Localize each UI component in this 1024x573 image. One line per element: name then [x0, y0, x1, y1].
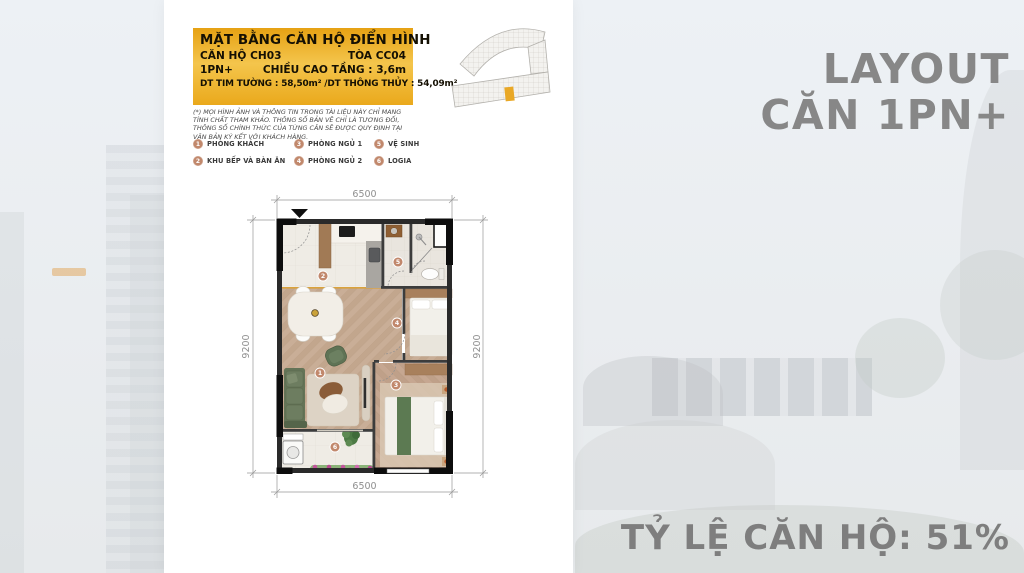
svg-text:5: 5 — [396, 259, 400, 266]
room-number-badge: 5 — [374, 139, 384, 149]
window — [387, 469, 429, 473]
apartment-info-card: MẶT BẰNG CĂN HỘ ĐIỂN HÌNH CĂN HỘ CH03 TÒ… — [193, 28, 413, 105]
svg-text:4: 4 — [395, 320, 400, 327]
floor-plan: 6500 6500 9200 9200 — [235, 185, 500, 505]
background-tower — [130, 195, 164, 573]
room-number-badge: 3 — [294, 139, 304, 149]
layout-heading-line2: CĂN 1PN+ — [760, 92, 1010, 138]
shelf — [283, 434, 303, 440]
sink — [369, 248, 380, 262]
room-legend: 1 PHÒNG KHÁCH 2 KHU BẾP VÀ BÀN ĂN 3 PHÒN… — [193, 137, 431, 167]
dim-top: 6500 — [352, 189, 376, 200]
svg-text:6: 6 — [333, 444, 337, 451]
legend-item-bedroom1: 3 PHÒNG NGỦ 1 — [294, 137, 374, 151]
room-number-badge: 1 — [193, 139, 203, 149]
wardrobe — [405, 364, 452, 375]
stove — [339, 226, 355, 237]
background-palm-tree — [940, 250, 1024, 360]
svg-text:2: 2 — [321, 273, 325, 280]
area-figures: DT TIM TƯỜNG : 58,50m² /DT THÔNG THỦY : … — [200, 79, 406, 89]
background-buildings — [652, 358, 872, 416]
badge-kitchen: 2 — [318, 271, 328, 281]
toilet — [422, 269, 445, 280]
badge-bedroom2: 4 — [392, 318, 402, 328]
info-card-title: MẶT BẰNG CĂN HỘ ĐIỂN HÌNH — [200, 33, 406, 48]
unit-ratio-heading: TỶ LỆ CĂN HỘ: 51% — [621, 518, 1010, 558]
disclaimer-text: (*) MỌI HÌNH ẢNH VÀ THÔNG TIN TRONG TÀI … — [193, 108, 417, 141]
legend-item-bedroom2: 4 PHÒNG NGỦ 2 — [294, 154, 374, 168]
badge-logia: 6 — [330, 442, 340, 452]
dining-set — [288, 287, 343, 342]
unit-code: CĂN HỘ CH03 — [200, 50, 281, 62]
background-tower — [0, 212, 24, 573]
legend-item-kitchen: 2 KHU BẾP VÀ BÀN ĂN — [193, 154, 294, 168]
bed-runner — [397, 397, 411, 455]
layout-heading: LAYOUT CĂN 1PN+ — [760, 46, 1010, 138]
building-key-plan — [448, 12, 562, 120]
legend-item-living: 1 PHÒNG KHÁCH — [193, 137, 294, 151]
tv-console — [362, 365, 370, 421]
background-palm-tree — [855, 318, 945, 398]
dim-right: 9200 — [472, 334, 483, 358]
background-trees — [575, 420, 775, 510]
room-number-badge: 2 — [193, 156, 203, 166]
badge-bedroom1: 3 — [391, 380, 401, 390]
bedroom-2 — [405, 289, 452, 356]
tower-code: TÒA CC04 — [348, 50, 406, 62]
layout-heading-line1: LAYOUT — [760, 46, 1010, 92]
svg-text:3: 3 — [394, 382, 398, 389]
room-number-badge: 4 — [294, 156, 304, 166]
badge-wc: 5 — [393, 257, 403, 267]
content-panel: MẶT BẰNG CĂN HỘ ĐIỂN HÌNH CĂN HỘ CH03 TÒ… — [164, 0, 573, 573]
entry-arrow-icon — [291, 209, 308, 218]
headboard — [405, 289, 452, 298]
room-number-badge: 6 — [374, 156, 384, 166]
background-roof — [52, 268, 86, 276]
highlighted-unit-marker — [504, 87, 514, 102]
slide: MẶT BẰNG CĂN HỘ ĐIỂN HÌNH CĂN HỘ CH03 TÒ… — [0, 0, 1024, 573]
cabinet — [319, 223, 331, 268]
badge-living: 1 — [315, 368, 325, 378]
ceiling-height: CHIỀU CAO TẦNG : 3,6m — [263, 64, 406, 76]
building-outline — [452, 29, 550, 107]
svg-text:1: 1 — [318, 370, 322, 377]
legend-item-wc: 5 VỆ SINH — [374, 137, 430, 151]
sofa — [284, 368, 307, 428]
legend-item-logia: 6 LOGIA — [374, 154, 430, 168]
unit-type: 1PN+ — [200, 64, 233, 76]
dim-bottom: 6500 — [352, 481, 376, 492]
dim-left: 9200 — [241, 334, 252, 358]
